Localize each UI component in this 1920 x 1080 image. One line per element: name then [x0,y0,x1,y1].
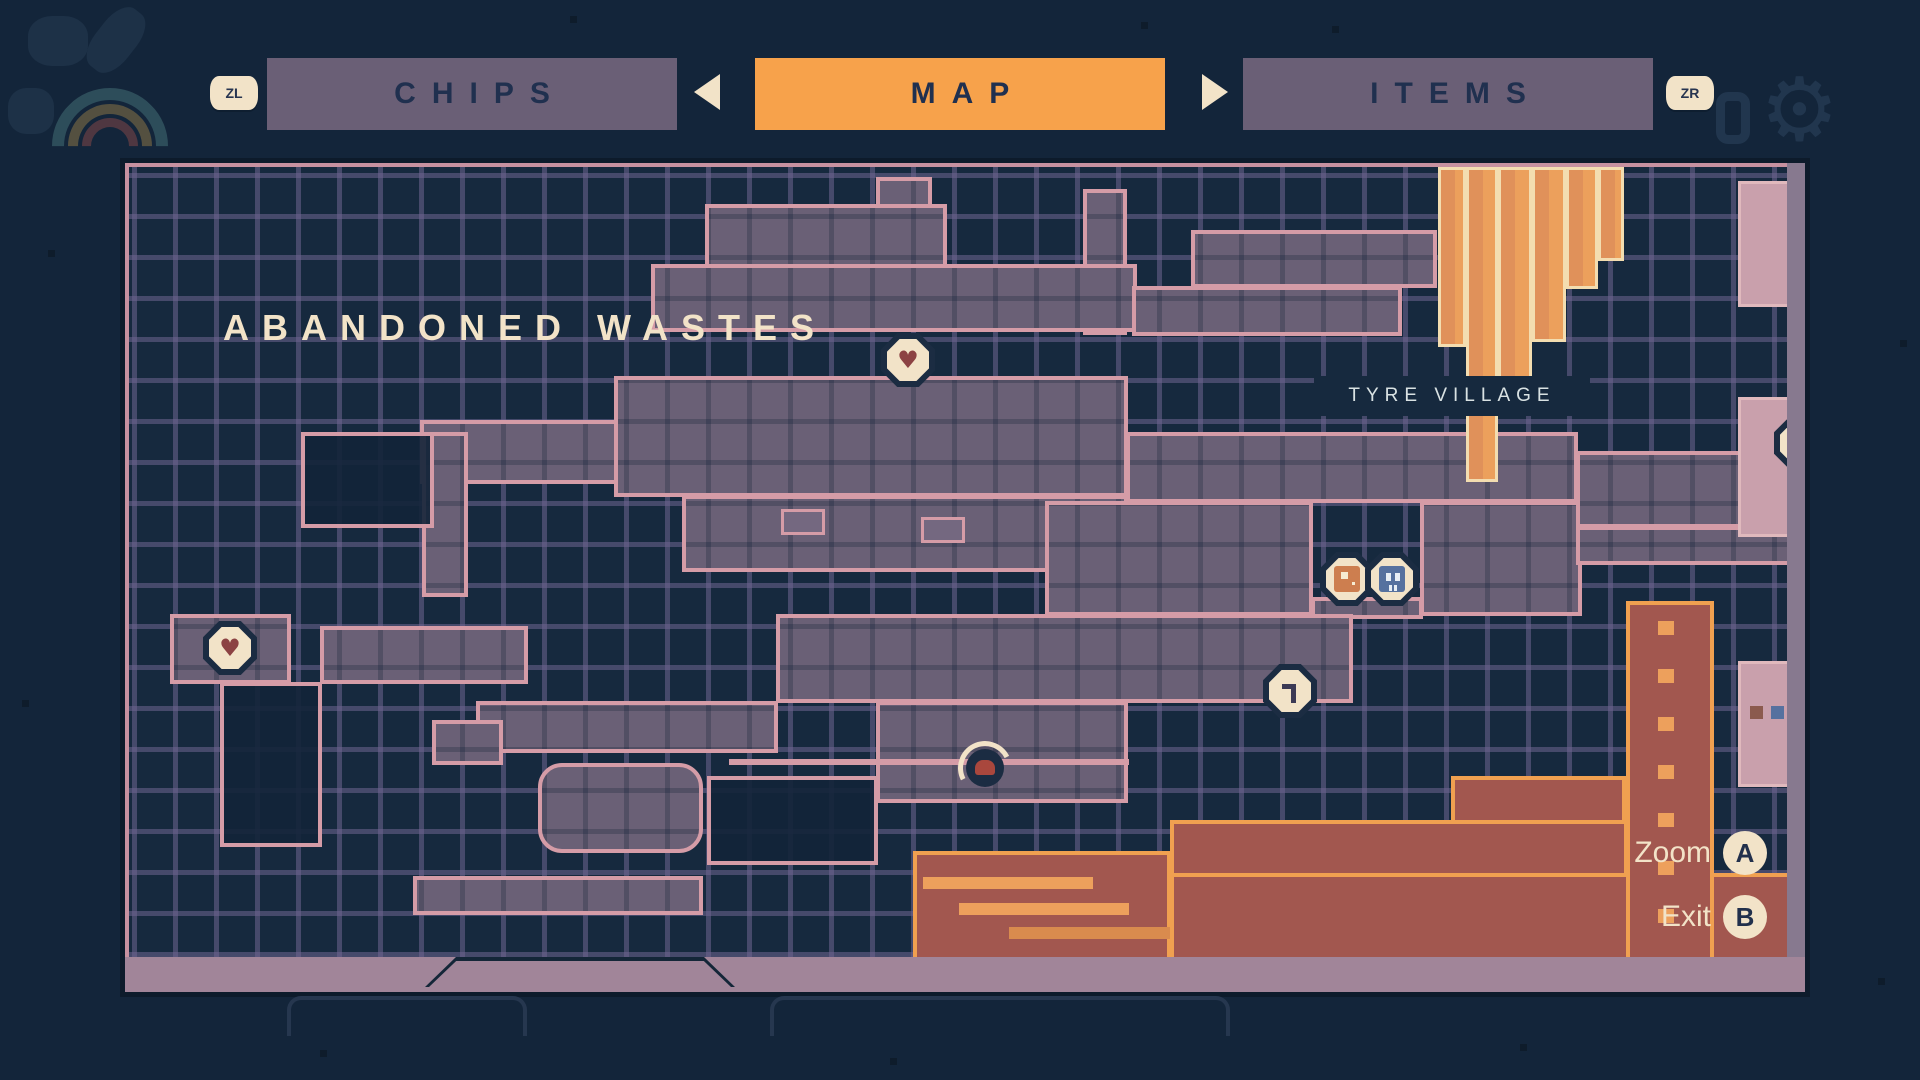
gear-icon: ⚙ [1760,58,1839,161]
bg-dot [48,250,55,257]
bg-dot [1878,978,1885,985]
tab-map[interactable]: MAP [755,58,1165,130]
bg-dot [22,700,29,707]
tab-chips[interactable]: CHIPS [267,58,677,130]
map-room [1045,501,1313,616]
player-marker [958,741,1012,795]
map-room [705,204,947,270]
panel-right-bezel [1787,163,1805,957]
heart-marker [881,333,935,387]
key-marker [1263,664,1317,718]
bezel-notch [425,957,735,987]
map-zone-orange [1598,167,1624,261]
bg-dot [1141,22,1148,29]
splash-logo-blob [8,88,54,134]
exit-label: Exit [1661,900,1711,934]
map-zone-orange [1498,167,1532,407]
bg-dot [570,16,577,23]
map-room-pink [1738,661,1787,787]
map-zone-red [1170,820,1628,877]
map-zone-red [913,851,1171,957]
map-room [413,876,703,915]
button-a-badge[interactable]: A [1723,831,1767,875]
splash-logo-blob [78,0,154,81]
device-foot-tab [770,996,1230,1036]
device-foot-tab [287,996,527,1036]
arrow-right-icon[interactable] [1202,74,1228,110]
heart-marker [203,621,257,675]
bg-dot [1520,1044,1527,1051]
bg-dot [1900,340,1907,347]
map-room [1191,230,1437,288]
map-room [432,720,503,765]
region-title: ABANDONED WASTES [223,307,827,349]
zoom-hint: Zoom A [1634,831,1767,875]
map-room-unexplored [707,776,878,865]
tab-items[interactable]: ITEMS [1243,58,1653,130]
save-marker [1365,552,1419,606]
bg-dot [320,1050,327,1057]
counter-zero-icon [1716,92,1750,144]
map-room [614,376,1128,497]
map-room [538,763,703,853]
arrow-left-icon[interactable] [694,74,720,110]
bg-dot [1332,26,1339,33]
shoulder-button-zr[interactable]: ZR [1666,76,1714,110]
map-room [1420,501,1582,616]
splash-logo-icon [28,16,88,66]
map-building-detail [781,509,825,535]
shoulder-button-zl[interactable]: ZL [210,76,258,110]
bezel-notch-inner [429,961,731,987]
map-zone-orange [1566,167,1598,289]
map-room [320,626,528,684]
map-room-unexplored [220,682,322,847]
map-panel: ABANDONED WASTES TYRE VILLAGE Zoom A Exi… [125,163,1805,992]
map-floor-line [729,759,1129,765]
map-room [1126,432,1578,503]
map-zone-red [1451,776,1626,824]
location-label: TYRE VILLAGE [1314,376,1590,416]
map-room [1132,286,1402,336]
map-room [1576,451,1746,528]
exit-hint: Exit B [1661,895,1767,939]
map-room-unexplored [301,432,434,528]
map-zone-orange [1466,167,1498,482]
map-building-detail [921,517,965,543]
map-viewport: ABANDONED WASTES TYRE VILLAGE Zoom A Exi… [125,163,1787,957]
map-zone-orange [1438,167,1466,347]
bg-dot [890,1058,897,1065]
map-zone-orange [1532,167,1566,342]
zoom-label: Zoom [1634,836,1711,870]
heart-marker [1774,416,1787,470]
button-b-badge[interactable]: B [1723,895,1767,939]
panel-bottom-bezel [125,957,1805,992]
map-room [476,701,778,753]
map-room-pink [1738,181,1787,307]
